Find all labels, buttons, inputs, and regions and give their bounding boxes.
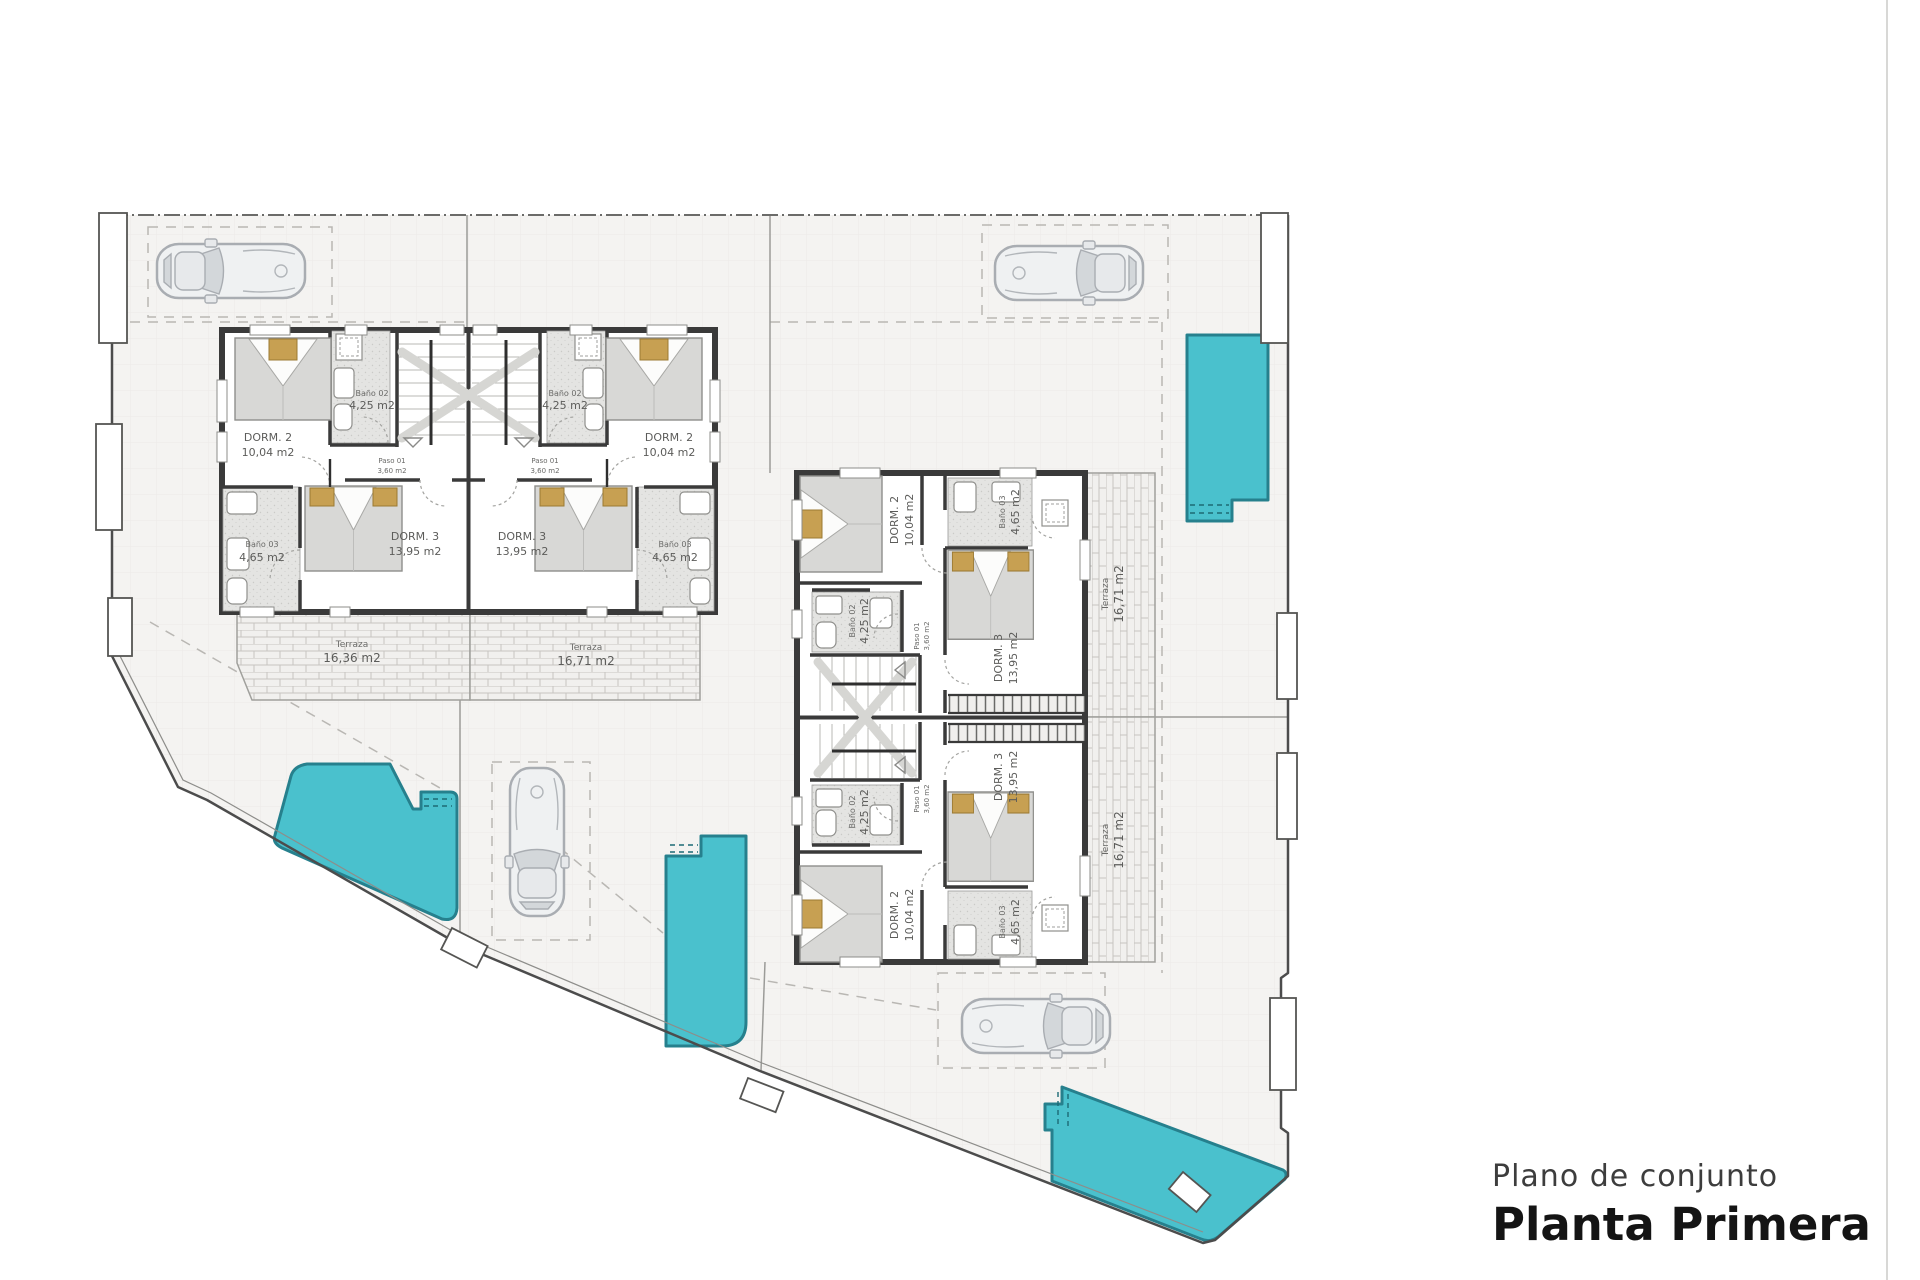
- label-terraza-b1: Terraza: [1101, 578, 1111, 612]
- label-paso-b2-area: 3,60 m2: [923, 784, 931, 813]
- label-dorm2-b2: DORM. 2: [888, 891, 901, 939]
- terraza-building-b: [1085, 473, 1155, 962]
- label-bano02-b1: Baño 02: [848, 604, 857, 637]
- label-dorm3-b1: DORM. 3: [992, 634, 1005, 682]
- pool-center: [666, 836, 746, 1046]
- label-terraza-b2-area: 16,71 m2: [1112, 811, 1126, 869]
- site-plan-canvas: DORM. 2 10,04 m2 DORM. 2 10,04 m2 Baño 0…: [0, 0, 1920, 1280]
- car-top-left: [157, 239, 305, 303]
- bed-dorm3-b1: [948, 550, 1033, 639]
- label-dorm3-a1: DORM. 3: [391, 530, 439, 543]
- label-bano03-a2: Baño 03: [658, 540, 691, 549]
- label-dorm3-a2: DORM. 3: [498, 530, 546, 543]
- pool-top-right: [1187, 335, 1268, 521]
- label-paso-a1: Paso 01: [378, 457, 405, 465]
- car-bottom: [962, 994, 1110, 1058]
- label-bano03-b1: Baño 03: [998, 495, 1007, 528]
- label-terraza-a1: Terraza: [335, 640, 369, 650]
- car-middle-left: [505, 768, 569, 916]
- bed-dorm2-a1: [235, 338, 331, 420]
- label-bano03-a1-area: 4,65 m2: [239, 551, 285, 564]
- label-bano03-b2: Baño 03: [998, 905, 1007, 938]
- label-dorm2-b2-area: 10,04 m2: [903, 889, 916, 942]
- label-dorm3-a2-area: 13,95 m2: [496, 545, 549, 558]
- label-dorm2-a1: DORM. 2: [244, 431, 292, 444]
- label-terraza-b2: Terraza: [1101, 824, 1111, 858]
- label-bano02-a2-area: 4,25 m2: [542, 399, 588, 412]
- label-terraza-a2: Terraza: [569, 643, 603, 653]
- label-bano02-a1-area: 4,25 m2: [349, 399, 395, 412]
- label-dorm2-a2-area: 10,04 m2: [643, 446, 696, 459]
- plan-title: Planta Primera: [1492, 1198, 1871, 1251]
- label-bano03-a1: Baño 03: [245, 540, 278, 549]
- label-paso-a2: Paso 01: [531, 457, 558, 465]
- label-paso-a2-area: 3,60 m2: [530, 467, 559, 475]
- label-dorm2-b1: DORM. 2: [888, 496, 901, 544]
- bed-dorm3-b2: [948, 792, 1033, 881]
- title-block: Plano de conjunto Planta Primera: [1492, 1159, 1871, 1251]
- label-paso-b1: Paso 01: [913, 622, 921, 649]
- label-dorm3-b2-area: 13,95 m2: [1007, 751, 1020, 804]
- terraza-building-a: [237, 613, 700, 700]
- building-b: [792, 468, 1090, 967]
- label-bano03-a2-area: 4,65 m2: [652, 551, 698, 564]
- label-terraza-a2-area: 16,71 m2: [557, 654, 615, 668]
- label-dorm2-b1-area: 10,04 m2: [903, 494, 916, 547]
- label-bano02-b1-area: 4,25 m2: [858, 598, 871, 644]
- label-bano03-b2-area: 4,65 m2: [1009, 899, 1022, 945]
- label-terraza-b1-area: 16,71 m2: [1112, 565, 1126, 623]
- label-dorm2-a1-area: 10,04 m2: [242, 446, 295, 459]
- label-paso-b2: Paso 01: [913, 785, 921, 812]
- bed-dorm2-b1: [800, 476, 882, 572]
- bed-dorm2-a2: [606, 338, 702, 420]
- label-bano02-a1: Baño 02: [355, 389, 388, 398]
- bed-dorm2-b2: [800, 866, 882, 962]
- car-top-right: [995, 241, 1143, 305]
- label-dorm3-b1-area: 13,95 m2: [1007, 632, 1020, 685]
- bed-dorm3-a1: [305, 486, 402, 571]
- label-terraza-a1-area: 16,36 m2: [323, 651, 381, 665]
- label-dorm3-a1-area: 13,95 m2: [389, 545, 442, 558]
- label-bano02-a2: Baño 02: [548, 389, 581, 398]
- label-paso-a1-area: 3,60 m2: [377, 467, 406, 475]
- floorplan-sheet: DORM. 2 10,04 m2 DORM. 2 10,04 m2 Baño 0…: [0, 0, 1920, 1280]
- label-bano02-b2-area: 4,25 m2: [858, 789, 871, 835]
- label-bano02-b2: Baño 02: [848, 795, 857, 828]
- building-a: [217, 325, 720, 617]
- label-paso-b1-area: 3,60 m2: [923, 621, 931, 650]
- label-dorm2-a2: DORM. 2: [645, 431, 693, 444]
- label-bano03-b1-area: 4,65 m2: [1009, 489, 1022, 535]
- bed-dorm3-a2: [535, 486, 632, 571]
- plan-subtitle: Plano de conjunto: [1492, 1159, 1778, 1194]
- label-dorm3-b2: DORM. 3: [992, 753, 1005, 801]
